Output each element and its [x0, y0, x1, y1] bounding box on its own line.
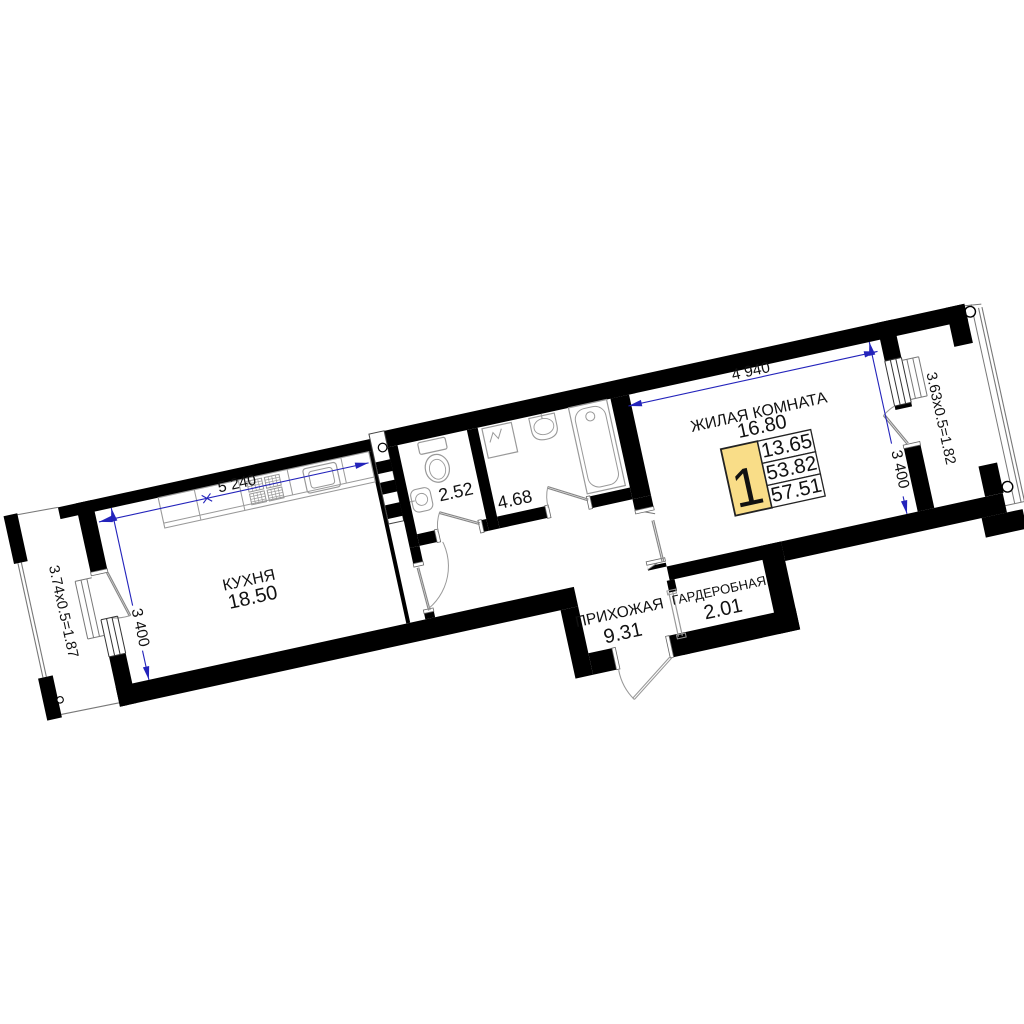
svg-text:3.63х0.5=1.82: 3.63х0.5=1.82: [922, 371, 958, 466]
svg-text:3 400: 3 400: [128, 607, 153, 649]
svg-text:3.74х0.5=1.87: 3.74х0.5=1.87: [45, 564, 81, 659]
svg-text:2.52: 2.52: [437, 478, 476, 505]
svg-text:4.68: 4.68: [496, 486, 535, 513]
